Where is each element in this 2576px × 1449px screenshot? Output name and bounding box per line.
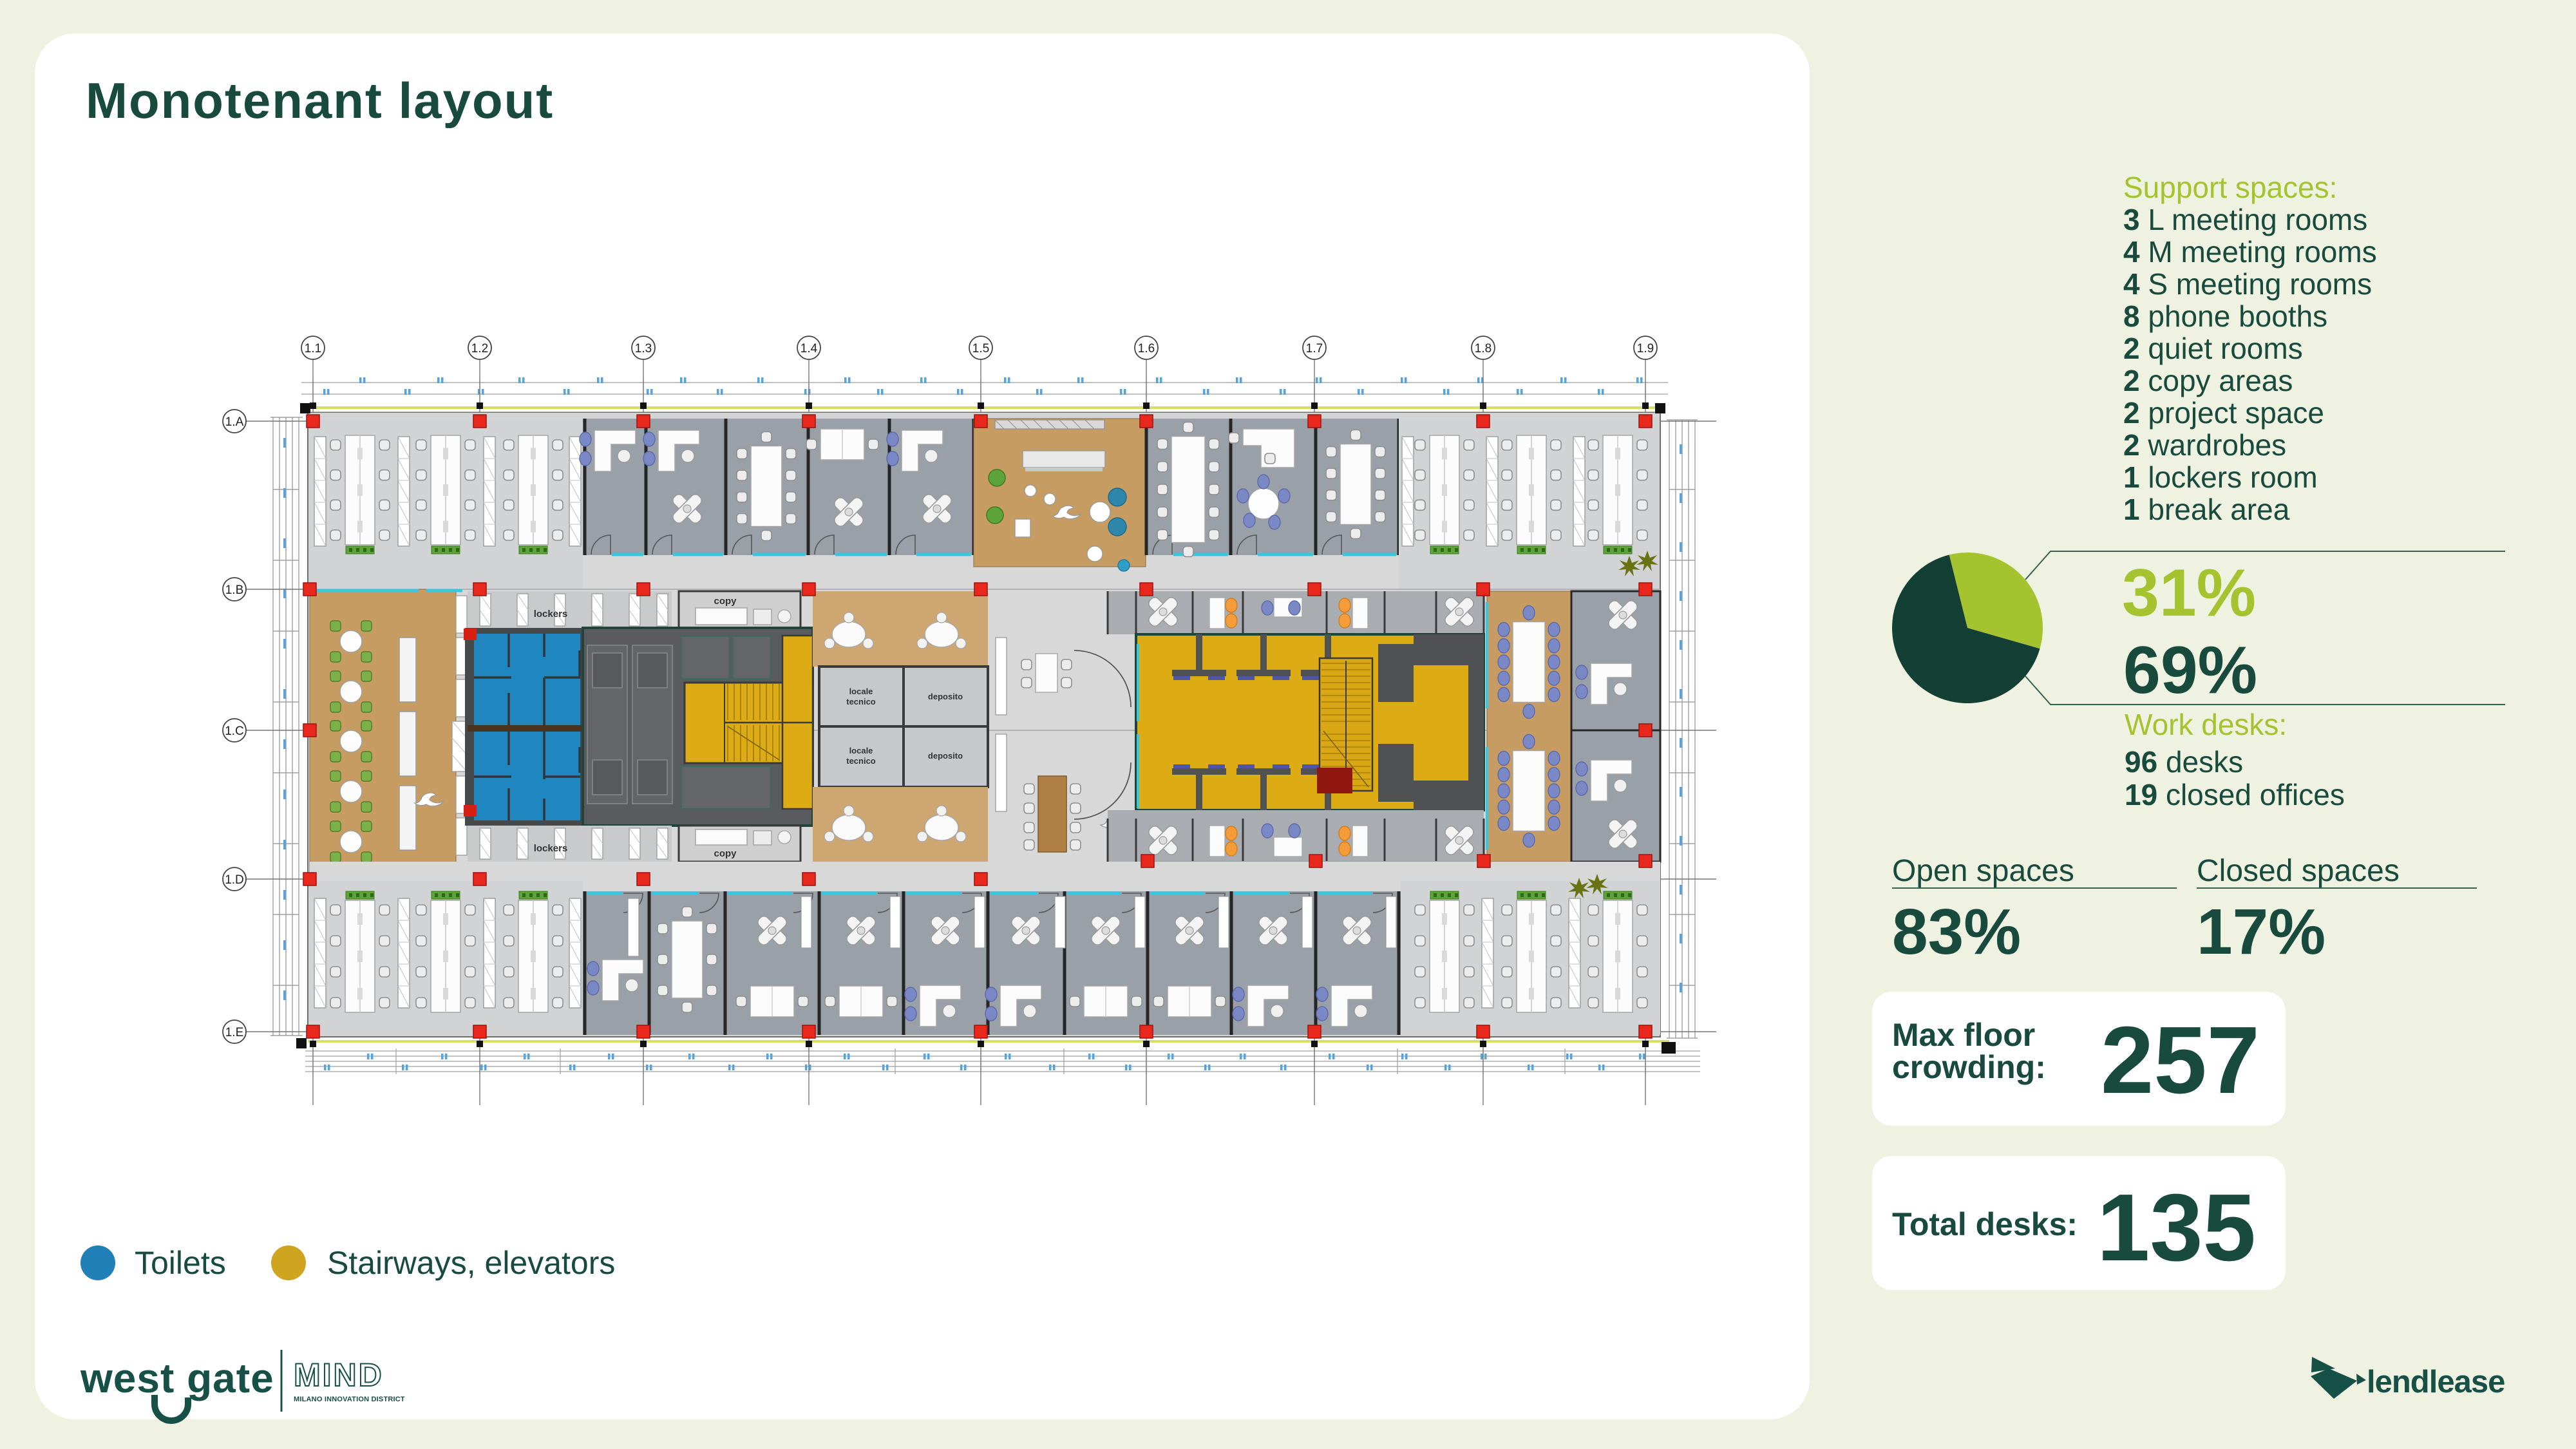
svg-text:1.C: 1.C xyxy=(225,724,244,738)
svg-text:locale: locale xyxy=(849,687,873,696)
svg-text:1.4: 1.4 xyxy=(800,342,818,355)
svg-text:MILANO INNOVATION DISTRICT: MILANO INNOVATION DISTRICT xyxy=(294,1396,405,1403)
svg-text:MIND: MIND xyxy=(294,1357,384,1393)
svg-text:lockers: lockers xyxy=(534,609,568,620)
svg-text:copy: copy xyxy=(714,848,737,859)
svg-text:1.5: 1.5 xyxy=(972,342,989,355)
svg-text:1.B: 1.B xyxy=(225,583,244,597)
svg-text:1.2: 1.2 xyxy=(471,342,488,355)
svg-text:lendlease: lendlease xyxy=(2367,1365,2505,1399)
svg-text:deposito: deposito xyxy=(928,692,963,701)
svg-text:lockers: lockers xyxy=(534,843,568,854)
svg-text:locale: locale xyxy=(849,746,873,755)
svg-text:1.D: 1.D xyxy=(225,873,244,887)
svg-text:tecnico: tecnico xyxy=(846,697,876,706)
svg-text:tecnico: tecnico xyxy=(846,756,876,766)
svg-text:1.8: 1.8 xyxy=(1475,342,1492,355)
svg-text:deposito: deposito xyxy=(928,751,963,761)
svg-text:1.1: 1.1 xyxy=(305,342,321,355)
svg-text:1.7: 1.7 xyxy=(1306,342,1323,355)
svg-text:1.A: 1.A xyxy=(225,415,244,429)
svg-text:1.3: 1.3 xyxy=(635,342,652,355)
svg-text:copy: copy xyxy=(714,596,737,607)
svg-text:west gate: west gate xyxy=(80,1355,274,1401)
svg-text:1.6: 1.6 xyxy=(1138,342,1155,355)
svg-text:1.9: 1.9 xyxy=(1637,342,1654,355)
svg-text:1.E: 1.E xyxy=(225,1026,244,1039)
